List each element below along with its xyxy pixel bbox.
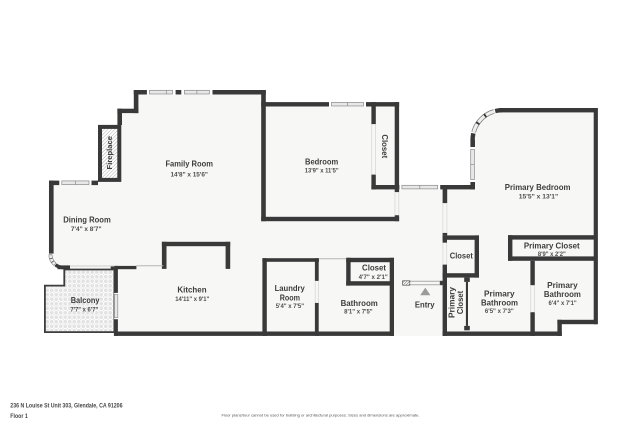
svg-text:Family Room: Family Room <box>165 159 213 169</box>
svg-text:8'9" x 2'2": 8'9" x 2'2" <box>538 251 566 258</box>
svg-text:15'5" x 13'1": 15'5" x 13'1" <box>519 194 558 201</box>
svg-text:Closet: Closet <box>455 291 465 315</box>
svg-text:Closet: Closet <box>380 134 390 158</box>
svg-text:Floor plans/tour cannot be use: Floor plans/tour cannot be used for buil… <box>222 414 420 418</box>
svg-text:236 N Louise St Unit 303, Glen: 236 N Louise St Unit 303, Glendale, CA 9… <box>10 403 123 410</box>
svg-text:13'9" x 11'5": 13'9" x 11'5" <box>305 167 339 174</box>
svg-text:Floor 1: Floor 1 <box>10 413 28 420</box>
svg-text:7'7" x 6'7": 7'7" x 6'7" <box>70 306 98 313</box>
svg-text:8'1" x 7'5": 8'1" x 7'5" <box>344 308 373 315</box>
svg-text:Balcony: Balcony <box>71 295 100 305</box>
svg-text:Primary Closet: Primary Closet <box>524 241 580 251</box>
svg-text:Dining Room: Dining Room <box>63 215 111 225</box>
svg-text:14'8" x 15'6": 14'8" x 15'6" <box>170 171 208 178</box>
svg-text:4'7" x 2'1": 4'7" x 2'1" <box>359 274 388 281</box>
svg-text:Bedroom: Bedroom <box>305 156 339 166</box>
svg-text:6'5" x 7'3": 6'5" x 7'3" <box>485 308 514 315</box>
svg-text:Bathroom: Bathroom <box>341 298 379 308</box>
svg-text:Room: Room <box>280 292 301 302</box>
svg-text:Closet: Closet <box>450 250 473 260</box>
svg-text:Bathroom: Bathroom <box>544 289 581 299</box>
svg-text:Bathroom: Bathroom <box>481 297 518 307</box>
svg-text:Kitchen: Kitchen <box>177 284 206 294</box>
svg-text:Fireplace: Fireplace <box>107 136 114 170</box>
svg-text:14'11" x 9'1": 14'11" x 9'1" <box>175 296 209 303</box>
svg-text:5'4" x 7'5": 5'4" x 7'5" <box>276 303 304 310</box>
svg-text:Primary Bedroom: Primary Bedroom <box>505 182 571 192</box>
svg-text:Entry: Entry <box>415 300 435 310</box>
svg-text:Closet: Closet <box>362 262 386 272</box>
svg-text:6'4" x 7'1": 6'4" x 7'1" <box>549 300 577 307</box>
svg-text:7'4" x 8'7": 7'4" x 8'7" <box>71 226 102 233</box>
